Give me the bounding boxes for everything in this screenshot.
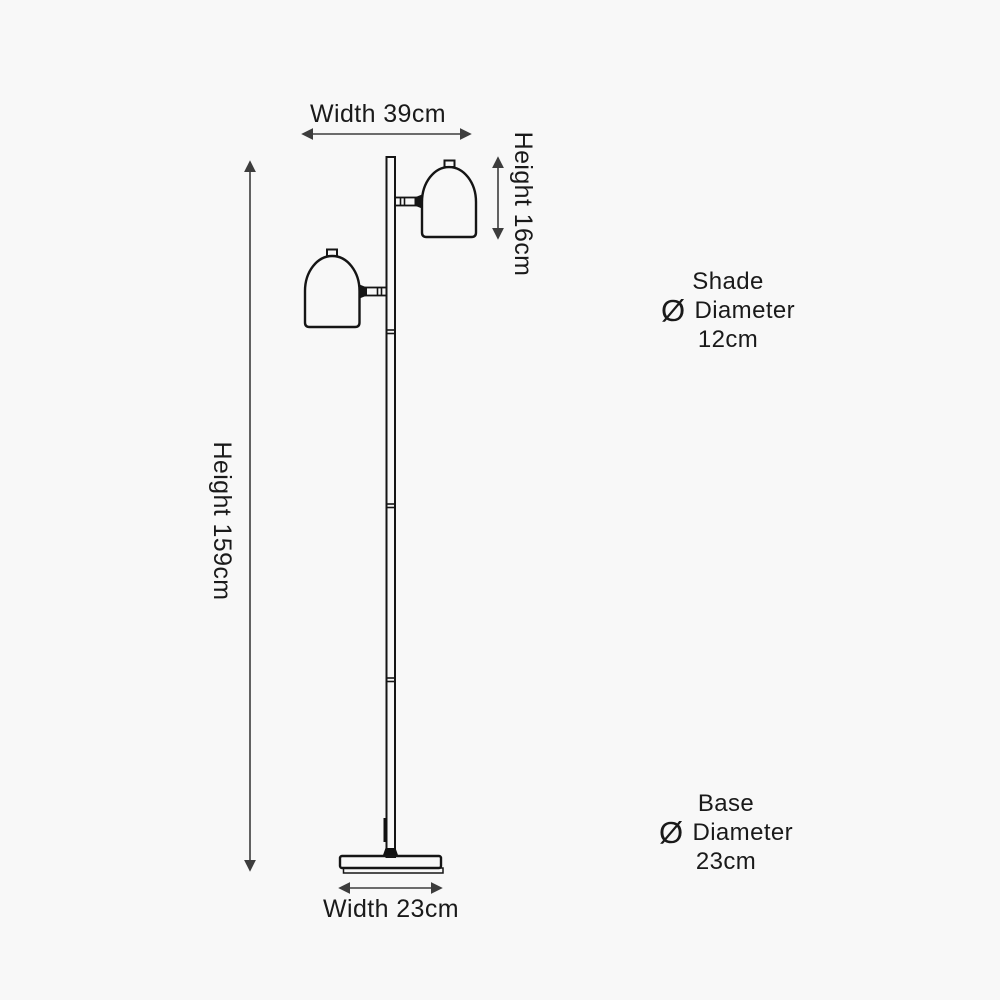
diameter-symbol: Ø — [659, 818, 684, 847]
shade-diameter-word: Diameter — [694, 296, 795, 325]
shade-diameter-note: Shade Ø Diameter 12cm — [598, 267, 858, 354]
lamp-shade-left — [305, 250, 387, 328]
lamp-base — [340, 818, 443, 873]
shade-diameter-title: Shade — [598, 267, 858, 296]
shade-top-arm — [395, 195, 422, 209]
shade-diameter-middle-line: Ø Diameter — [598, 296, 858, 325]
shade-left-arm — [360, 285, 387, 299]
pole-joint-lines — [387, 330, 396, 682]
diameter-symbol: Ø — [661, 296, 686, 325]
bottom-width-label: Width 23cm — [241, 894, 541, 924]
shade-diameter-value: 12cm — [598, 325, 858, 354]
base-diameter-note: Base Ø Diameter 23cm — [596, 789, 856, 876]
base-diameter-value: 23cm — [596, 847, 856, 876]
lamp-shade-top — [395, 161, 476, 238]
base-diameter-word: Diameter — [692, 818, 793, 847]
cable-switch-mark — [384, 818, 388, 842]
lamp-dimension-diagram: Width 39cm Height 159cm Height 16cm Widt… — [0, 0, 1000, 1000]
overall-height-label: Height 159cm — [207, 411, 237, 631]
top-width-label: Width 39cm — [228, 99, 528, 129]
lamp-pole — [387, 157, 396, 857]
shade-height-label: Height 16cm — [508, 114, 538, 294]
base-diameter-title: Base — [596, 789, 856, 818]
base-diameter-middle-line: Ø Diameter — [596, 818, 856, 847]
